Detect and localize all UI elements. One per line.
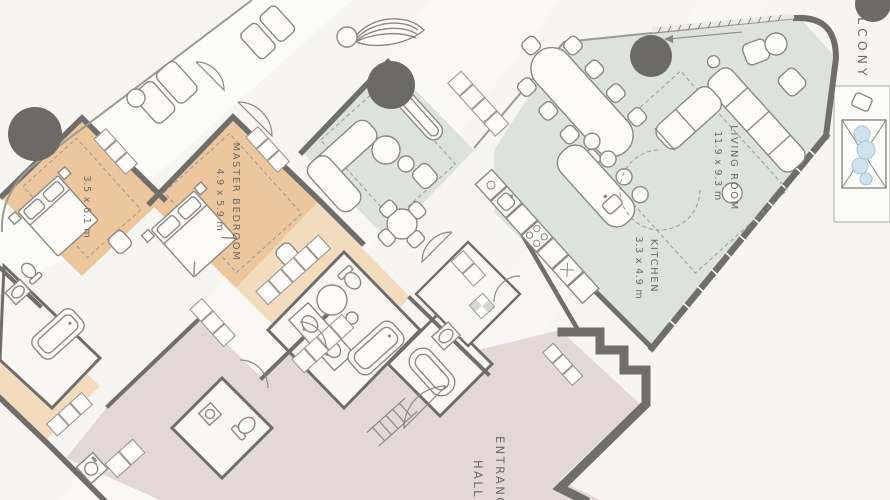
- label-master-bedroom-name: MASTER BEDROOM: [230, 143, 241, 262]
- jacuzzi-icon: [842, 120, 886, 188]
- side-table-icon: [127, 89, 145, 107]
- label-bedroom-2-dims: 3.5 x 6.1 m: [81, 176, 92, 239]
- floor-plan-canvas: MASTER BEDROOM 4.9 x 5.9 m 3.5 x 6.1 m L…: [0, 0, 890, 500]
- column: [8, 107, 62, 161]
- ottoman-icon: [317, 285, 347, 315]
- floor-plan-svg: MASTER BEDROOM 4.9 x 5.9 m 3.5 x 6.1 m L…: [0, 0, 890, 500]
- label-kitchen-dims: 3.3 x 4.9 m: [633, 237, 644, 300]
- column: [367, 61, 415, 109]
- label-entrance-line1: ENTRANCE: [493, 436, 507, 500]
- label-kitchen-name: KITCHEN: [648, 239, 659, 294]
- coffee-table-icon: [372, 136, 400, 164]
- small-table-icon: [398, 156, 414, 172]
- label-balcony: BALCONY: [855, 0, 870, 80]
- label-living-room-name: LIVING ROOM: [728, 125, 739, 211]
- corner-table-icon: [765, 33, 787, 55]
- column: [630, 35, 672, 77]
- label-entrance-line2: HALL: [471, 460, 485, 499]
- label-living-room-dims: 11.9 x 9.3 m: [712, 131, 723, 201]
- label-master-bedroom-dims: 4.9 x 5.9 m: [214, 169, 225, 232]
